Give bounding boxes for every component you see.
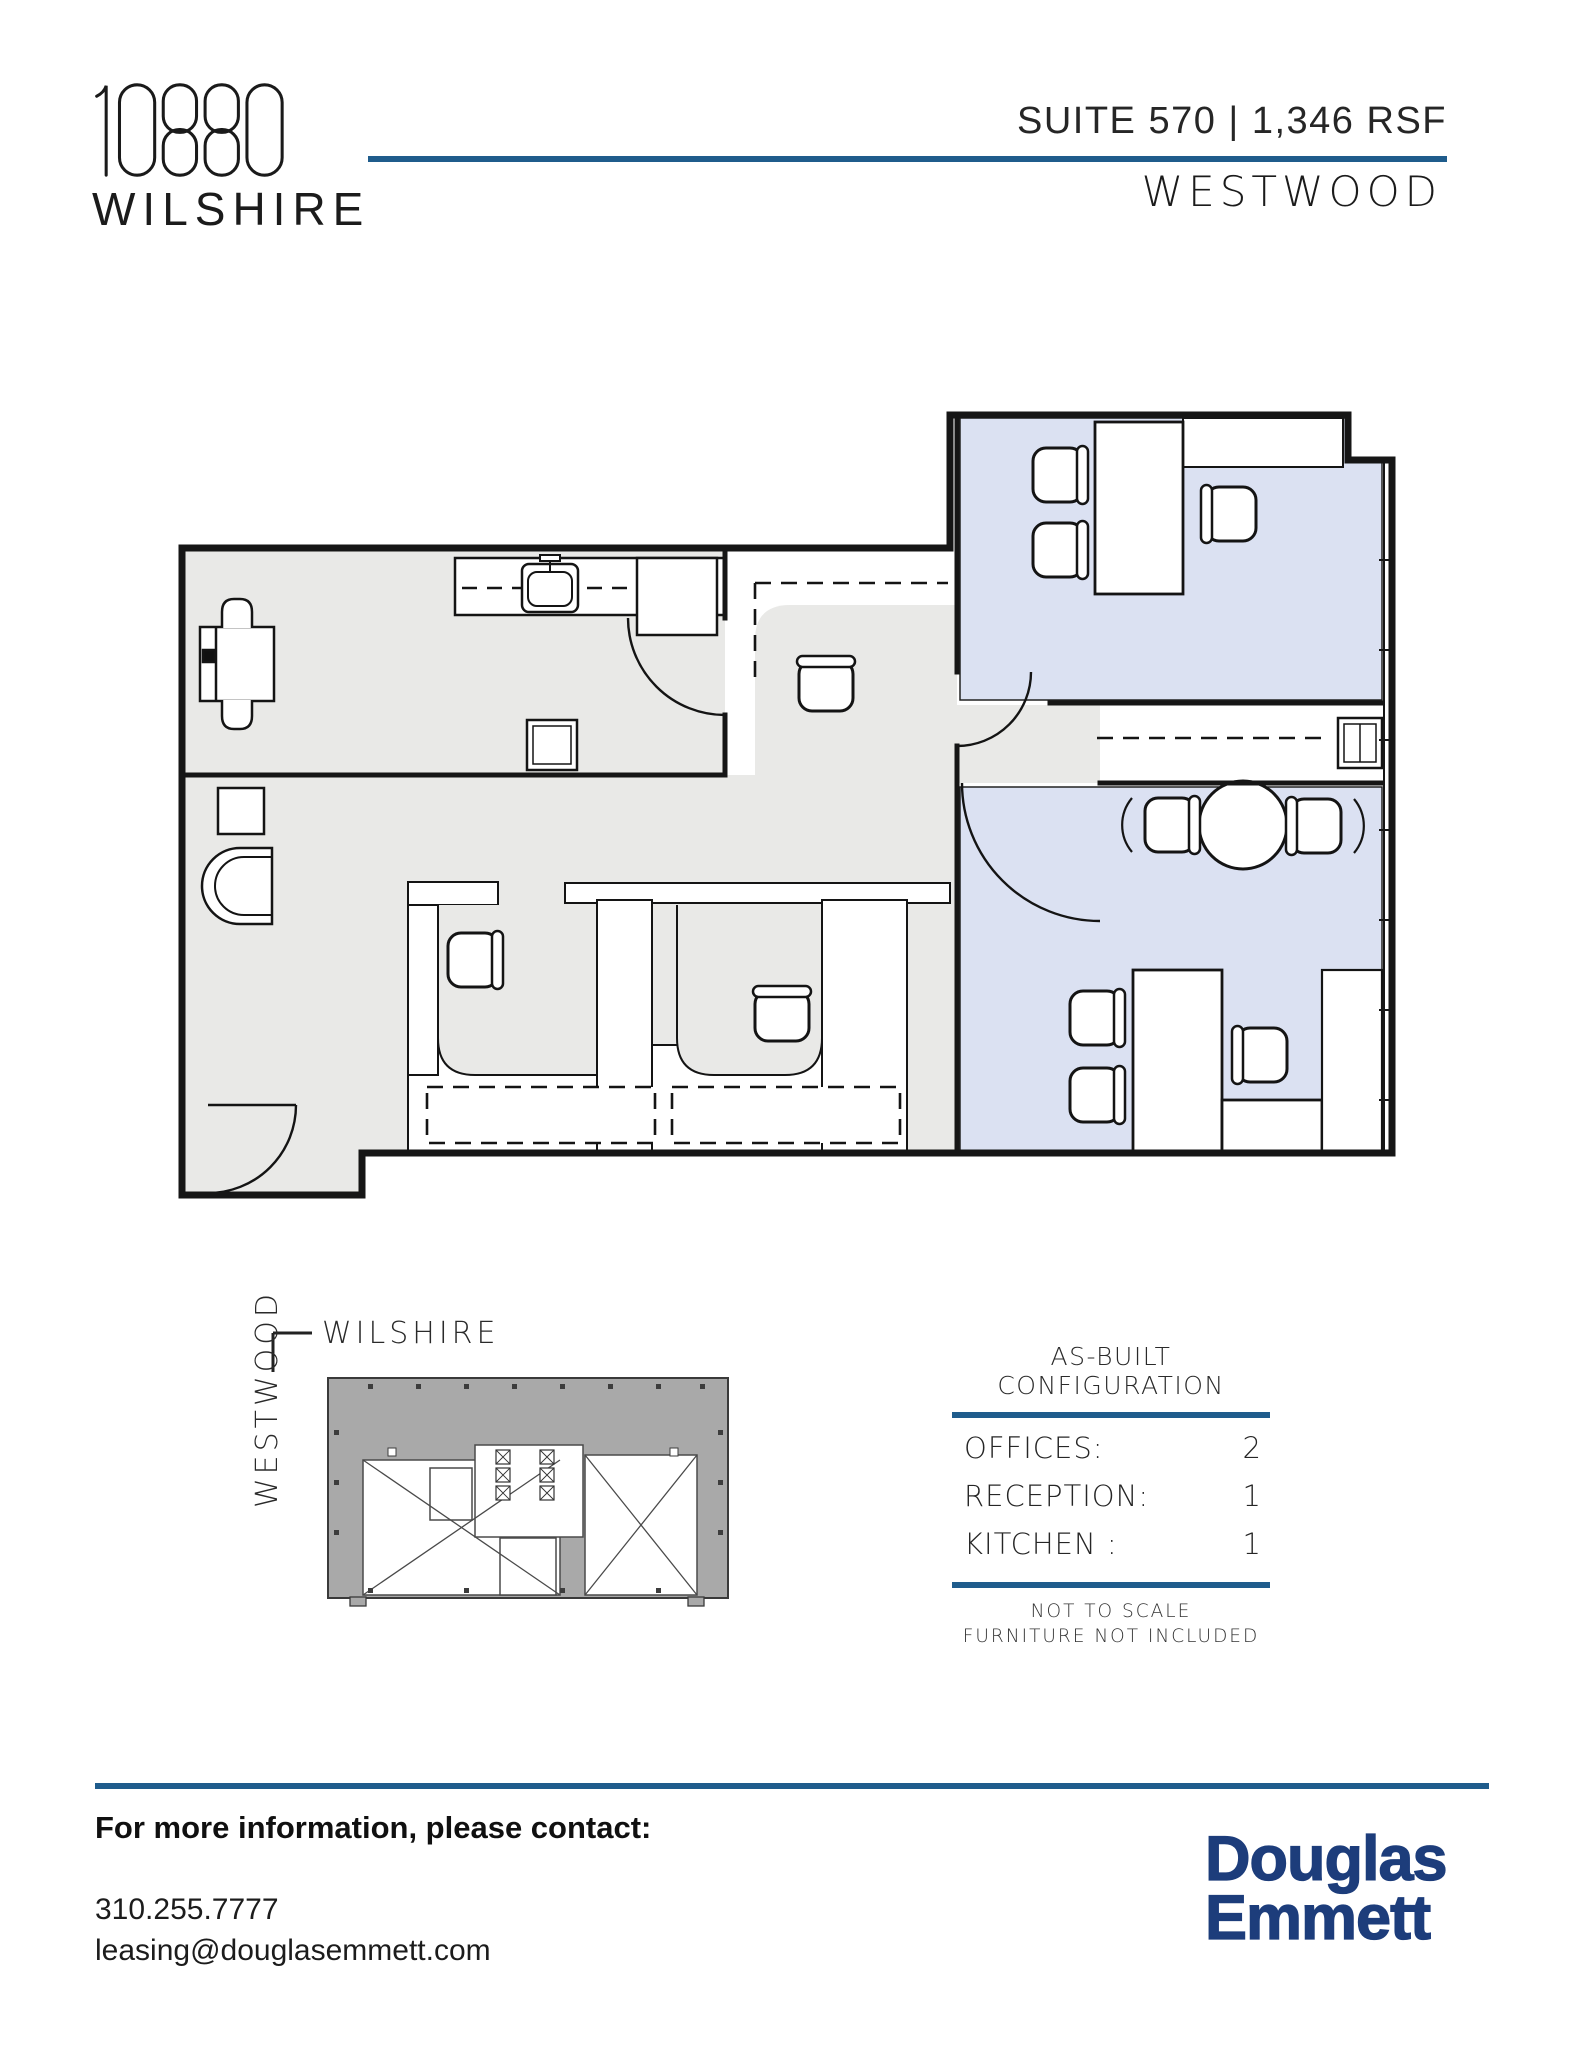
config-value: 2 (1243, 1431, 1262, 1465)
note-furniture: FURNITURE NOT INCLUDED (952, 1625, 1270, 1650)
config-row-reception: RECEPTION: 1 (964, 1472, 1262, 1520)
config-rows: OFFICES: 2 RECEPTION: 1 KITCHEN : 1 (952, 1418, 1270, 1568)
keyplan-street-westwood: WESTWOOD (250, 1290, 285, 1508)
config-row-kitchen: KITCHEN : 1 (964, 1520, 1262, 1568)
logo-line-1: Douglas (1205, 1830, 1495, 1889)
logo-line-2: Emmett (1205, 1889, 1495, 1948)
config-label: RECEPTION: (964, 1479, 1149, 1513)
config-label: OFFICES: (964, 1431, 1104, 1465)
digits-10880 (97, 85, 282, 175)
contact-phone: 310.255.7777 (95, 1893, 279, 1927)
contact-email: leasing@douglasemmett.com (95, 1934, 491, 1968)
side-table (218, 788, 264, 834)
as-built-configuration: AS-BUILT CONFIGURATION OFFICES: 2 RECEPT… (952, 1342, 1270, 1650)
overhead-storage-1 (427, 1087, 655, 1143)
config-title: AS-BUILT CONFIGURATION (952, 1342, 1270, 1400)
note-not-to-scale: NOT TO SCALE (952, 1600, 1270, 1625)
footer-rule (95, 1783, 1489, 1789)
header-rule (368, 156, 1447, 162)
workstations (408, 882, 950, 1153)
suite-rsf-heading: SUITE 570 | 1,346 RSF (1017, 100, 1447, 143)
round-table (1199, 781, 1287, 869)
config-row-offices: OFFICES: 2 (964, 1424, 1262, 1472)
cabinet (1322, 970, 1382, 1153)
submarket-label: WESTWOOD (1142, 167, 1442, 216)
contact-heading: For more information, please contact: (95, 1810, 651, 1846)
suite-areas (363, 1445, 697, 1595)
credenza (1222, 1100, 1322, 1153)
overhead-storage-2 (672, 1087, 900, 1143)
douglas-emmett-logo: Douglas Emmett (1205, 1830, 1495, 1948)
flyer-page: { "header": { "building_number": "10880"… (0, 0, 1583, 2048)
config-value: 1 (1243, 1527, 1262, 1561)
building-number-graphic (90, 80, 285, 180)
config-notes: NOT TO SCALE FURNITURE NOT INCLUDED (952, 1600, 1270, 1650)
keyplan-street-wilshire: WILSHIRE (322, 1316, 499, 1351)
floor-plan (170, 400, 1400, 1200)
lounge-table (202, 848, 272, 924)
config-rule-bottom (952, 1582, 1270, 1588)
config-value: 1 (1243, 1479, 1262, 1513)
config-label: KITCHEN : (964, 1527, 1118, 1561)
building-name: WILSHIRE (92, 182, 370, 236)
